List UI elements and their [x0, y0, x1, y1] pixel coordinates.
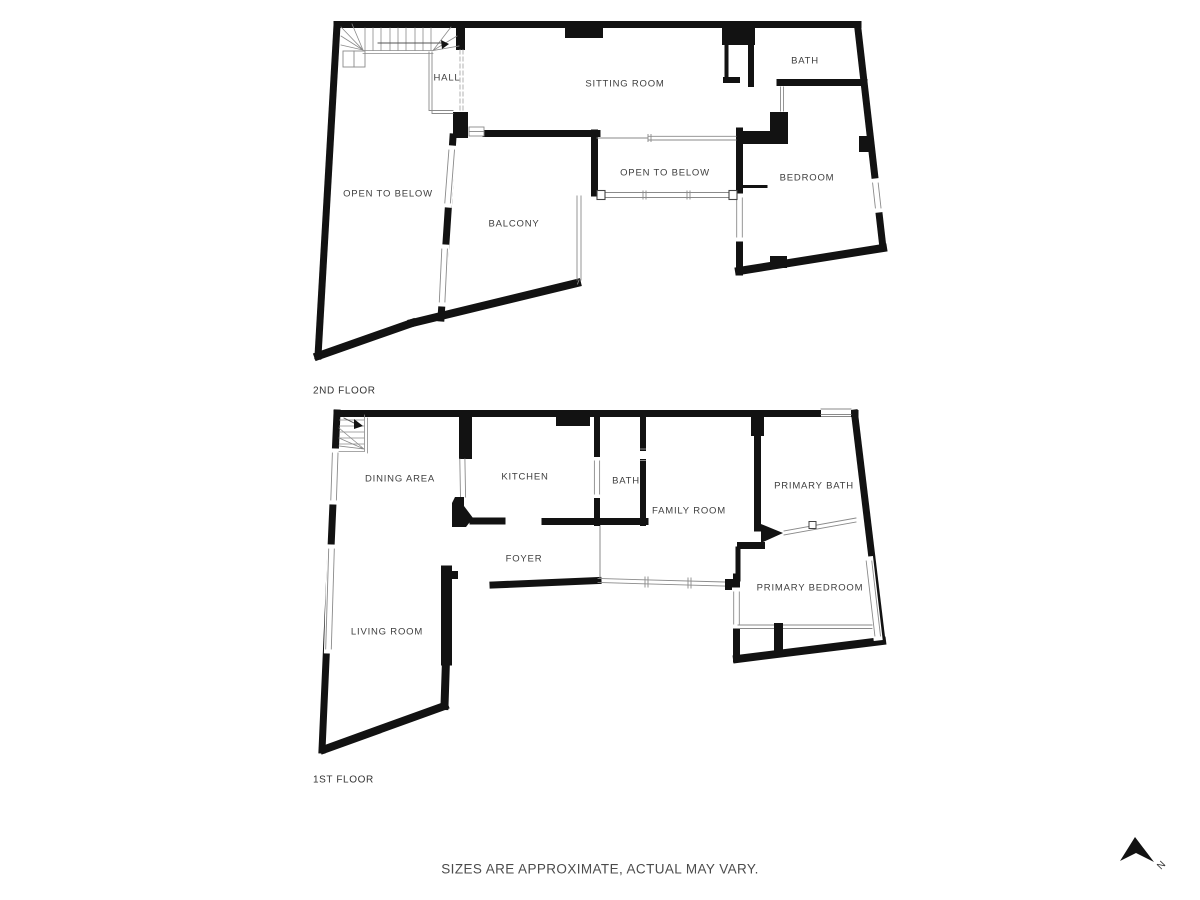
stairs-direction-arrow-1f [354, 419, 363, 429]
floor-title-1st: 1ST FLOOR [313, 775, 374, 786]
room-label-primary-bedroom: PRIMARY BEDROOM [757, 583, 864, 594]
room-label-foyer: FOYER [506, 554, 543, 565]
room-label-bath-1f: BATH [612, 476, 640, 487]
floorplan-page: N HALL SITTING ROOM BATH OPEN TO BELOW B… [0, 0, 1200, 900]
room-label-family-room: FAMILY ROOM [652, 506, 726, 517]
room-label-dining-area: DINING AREA [365, 474, 435, 485]
room-label-open-to-below-left: OPEN TO BELOW [343, 189, 433, 200]
room-label-primary-bath: PRIMARY BATH [774, 481, 854, 492]
stairs-2f [341, 24, 459, 54]
room-label-bath-2f: BATH [791, 56, 819, 67]
north-compass: N [1120, 837, 1168, 872]
disclaimer-text: SIZES ARE APPROXIMATE, ACTUAL MAY VARY. [441, 862, 758, 877]
north-arrow-icon [1120, 837, 1154, 862]
room-label-balcony: BALCONY [488, 219, 539, 230]
floorplan-canvas: N [0, 0, 1200, 900]
room-label-living-room: LIVING ROOM [351, 627, 423, 638]
floor-title-2nd: 2ND FLOOR [313, 386, 376, 397]
north-label: N [1155, 859, 1168, 872]
floorplan-1st-floor [322, 408, 882, 751]
stairs-1f [339, 415, 368, 453]
room-label-hall: HALL [434, 73, 461, 84]
room-label-bedroom: BEDROOM [780, 173, 835, 184]
room-label-sitting-room: SITTING ROOM [585, 79, 664, 90]
room-label-open-to-below-center: OPEN TO BELOW [620, 168, 710, 179]
room-label-kitchen: KITCHEN [501, 472, 548, 483]
